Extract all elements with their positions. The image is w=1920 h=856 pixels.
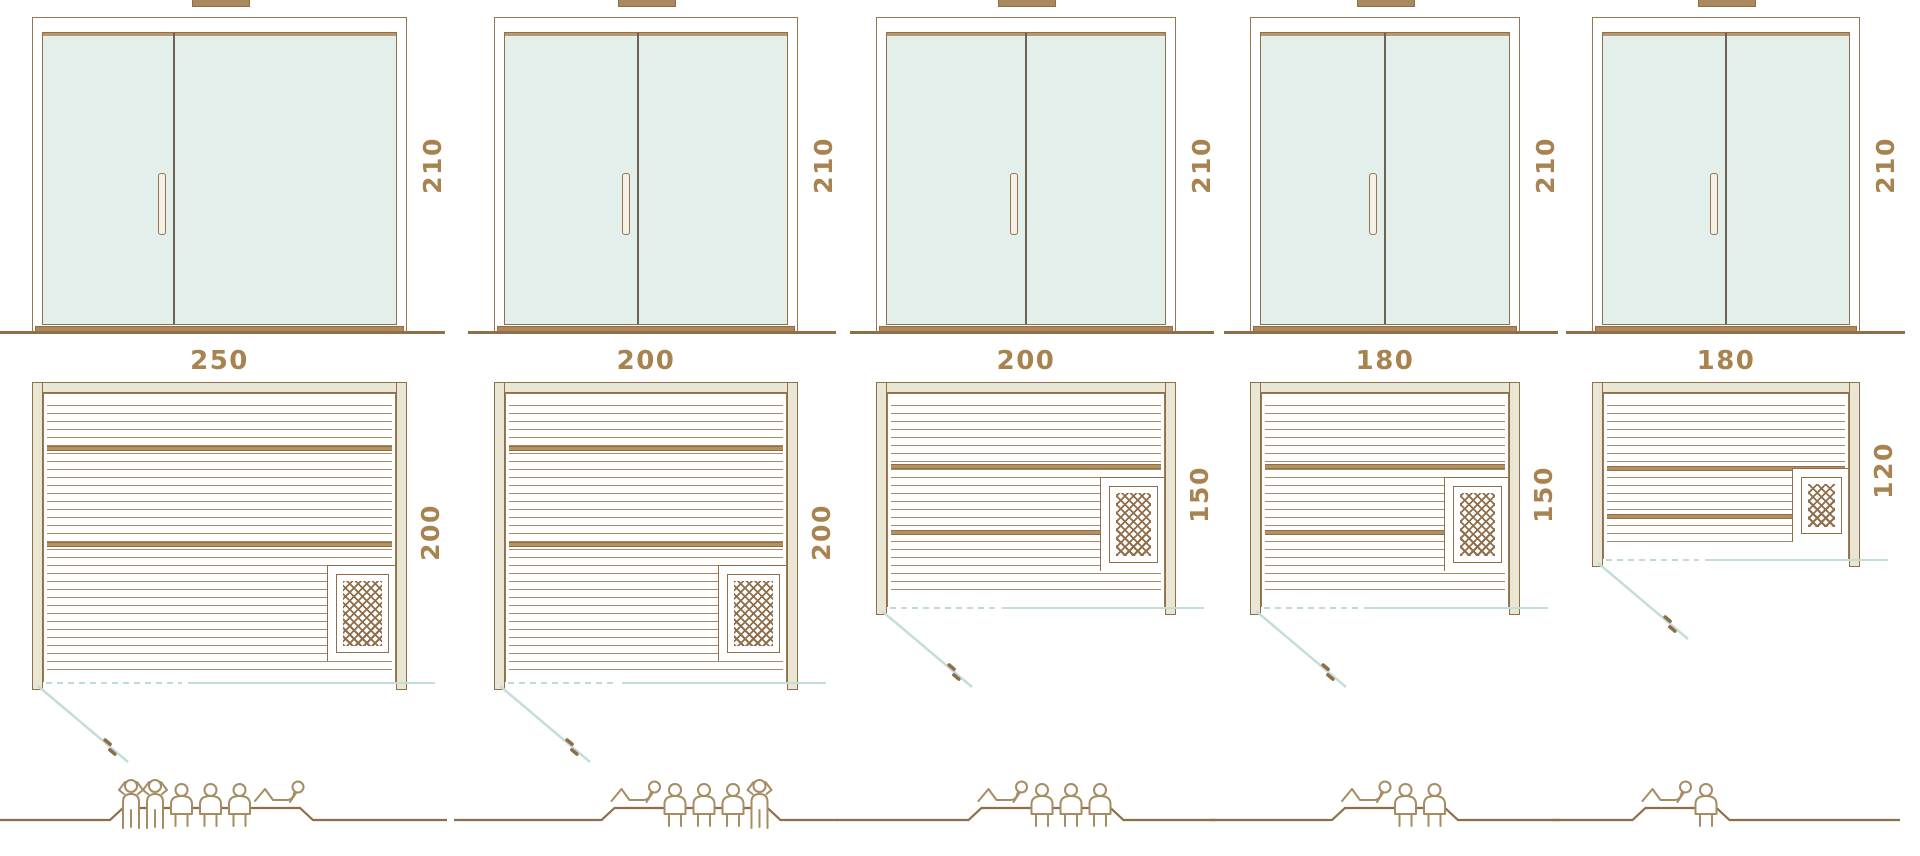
glass-door-panels (886, 32, 1166, 325)
capacity-figures (836, 748, 1216, 840)
sauna-heater (336, 574, 389, 653)
glass-front-line (1364, 607, 1548, 609)
plan-back-wall (1592, 382, 1860, 393)
door-elevation (32, 17, 407, 333)
plan-depth-label: 200 (413, 487, 447, 577)
sauna-180x150: 210 180 150 (1250, 0, 1520, 856)
glass-door-panels (1602, 32, 1850, 325)
glass-door-panels (1260, 32, 1510, 325)
heater-crosshatch (1460, 493, 1495, 556)
sitting-person-icon (1061, 784, 1082, 826)
bench-edge-line (509, 446, 783, 451)
chimney-vent (998, 0, 1056, 7)
standing-person-icon (143, 780, 167, 828)
plan-back-wall (32, 382, 407, 393)
sitting-person-icon (1424, 784, 1445, 826)
sauna-heater (1801, 477, 1842, 534)
heater-niche (327, 565, 395, 661)
plan-width-label: 200 (494, 346, 798, 376)
standing-person-icon (119, 780, 143, 828)
door-divider-line (1725, 33, 1727, 324)
glass-front-line (622, 682, 826, 684)
sitting-person-icon (1395, 784, 1416, 826)
plan-back-wall (494, 382, 798, 393)
door-elevation (1592, 17, 1860, 333)
door-handle (622, 173, 630, 235)
capacity-figures (1552, 748, 1900, 840)
heater-crosshatch (343, 581, 382, 646)
plan-right-wall (1849, 382, 1860, 567)
plan-interior (43, 393, 396, 682)
plan-interior (1603, 393, 1849, 559)
sauna-200x200: 210 200 200 (494, 0, 798, 856)
chimney-vent (1698, 0, 1756, 7)
bench-edge-line (47, 446, 392, 451)
heater-niche (1100, 477, 1164, 571)
heater-crosshatch (1808, 484, 1835, 527)
sauna-heater (1109, 486, 1158, 563)
sauna-250x200: 210 250 200 (32, 0, 407, 856)
door-swing-arc (1590, 561, 1730, 671)
plan-width-label: 250 (32, 346, 407, 376)
heater-niche (1444, 477, 1508, 571)
plan-right-wall (1165, 382, 1176, 615)
sitting-person-icon (723, 784, 744, 826)
heater-niche (718, 565, 786, 661)
door-elevation (876, 17, 1176, 333)
plan-right-wall (396, 382, 407, 690)
heater-crosshatch (1116, 493, 1151, 556)
plan-right-wall (1509, 382, 1520, 615)
floor-plan (876, 382, 1176, 615)
standing-person-icon (748, 780, 772, 828)
sitting-person-icon (229, 784, 250, 826)
heater-crosshatch (734, 581, 773, 646)
sauna-size-diagram: 210 250 200 (0, 0, 1920, 856)
bench-edge-line (47, 542, 392, 547)
capacity-figures (1210, 748, 1560, 840)
plan-interior (887, 393, 1165, 607)
capacity-ground-line (1552, 808, 1900, 820)
door-divider-line (1025, 33, 1027, 324)
door-divider-line (1384, 33, 1386, 324)
plan-left-wall (1250, 382, 1261, 615)
lying-person-icon (612, 782, 661, 803)
capacity-figures (0, 748, 447, 840)
plan-width-label: 200 (876, 346, 1176, 376)
glass-door-panels (42, 32, 397, 325)
door-height-label: 210 (806, 120, 840, 210)
door-height-label: 210 (415, 120, 449, 210)
glass-header-bar (43, 33, 396, 36)
plan-back-wall (1250, 382, 1520, 393)
plan-left-wall (1592, 382, 1603, 567)
door-elevation (494, 17, 798, 333)
lying-person-icon (255, 782, 304, 803)
plan-left-wall (494, 382, 505, 690)
ground-line (468, 331, 836, 334)
door-handle (1369, 173, 1377, 235)
door-elevation (1250, 17, 1520, 333)
ground-line (1566, 331, 1905, 334)
floor-plan (1250, 382, 1520, 615)
capacity-ground-line (836, 808, 1216, 820)
bench-edge-line (891, 464, 1161, 469)
sitting-person-icon (1032, 784, 1053, 826)
sitting-person-icon (200, 784, 221, 826)
plan-interior (505, 393, 787, 682)
door-handle (158, 173, 166, 235)
glass-door-panels (504, 32, 788, 325)
door-height-label: 210 (1868, 120, 1902, 210)
bench-edge-line (1265, 464, 1505, 469)
plan-depth-label: 120 (1866, 426, 1900, 516)
plan-right-wall (787, 382, 798, 690)
plan-width-label: 180 (1250, 346, 1520, 376)
door-divider-line (173, 33, 175, 324)
door-handle (1010, 173, 1018, 235)
door-swing-arc (1248, 609, 1388, 719)
sauna-200x150: 210 200 150 (876, 0, 1176, 856)
door-swing-arc (874, 609, 1014, 719)
capacity-ground-line (1210, 808, 1560, 820)
door-divider-line (637, 33, 639, 324)
chimney-vent (1357, 0, 1415, 7)
capacity-figures (454, 748, 838, 840)
plan-depth-label: 150 (1182, 450, 1216, 540)
sauna-180x120: 210 180 120 (1592, 0, 1860, 856)
glass-header-bar (505, 33, 787, 36)
plan-left-wall (876, 382, 887, 615)
sauna-heater (727, 574, 780, 653)
ground-line (0, 331, 445, 334)
lying-person-icon (979, 782, 1028, 803)
floor-plan (32, 382, 407, 690)
capacity-ground-line (454, 808, 838, 820)
door-handle (1710, 173, 1718, 235)
glass-front-line (188, 682, 435, 684)
plan-back-wall (876, 382, 1176, 393)
lying-person-icon (1643, 782, 1692, 803)
plan-interior (1261, 393, 1509, 607)
plan-left-wall (32, 382, 43, 690)
sitting-person-icon (171, 784, 192, 826)
ground-line (850, 331, 1214, 334)
ground-line (1224, 331, 1558, 334)
door-height-label: 210 (1184, 120, 1218, 210)
glass-front-line (1705, 559, 1888, 561)
sitting-person-icon (1090, 784, 1111, 826)
capacity-ground-line (0, 808, 447, 820)
heater-niche (1792, 468, 1848, 542)
sitting-person-icon (1696, 784, 1717, 826)
plan-depth-label: 150 (1526, 450, 1560, 540)
sitting-person-icon (665, 784, 686, 826)
lying-person-icon (1342, 782, 1391, 803)
bench-edge-line (509, 542, 783, 547)
plan-width-label: 180 (1592, 346, 1860, 376)
glass-front-line (1002, 607, 1204, 609)
sauna-heater (1453, 486, 1502, 563)
chimney-vent (618, 0, 676, 7)
floor-plan (494, 382, 798, 690)
plan-depth-label: 200 (804, 487, 838, 577)
floor-plan (1592, 382, 1860, 567)
sitting-person-icon (694, 784, 715, 826)
chimney-vent (192, 0, 250, 7)
door-height-label: 210 (1528, 120, 1562, 210)
